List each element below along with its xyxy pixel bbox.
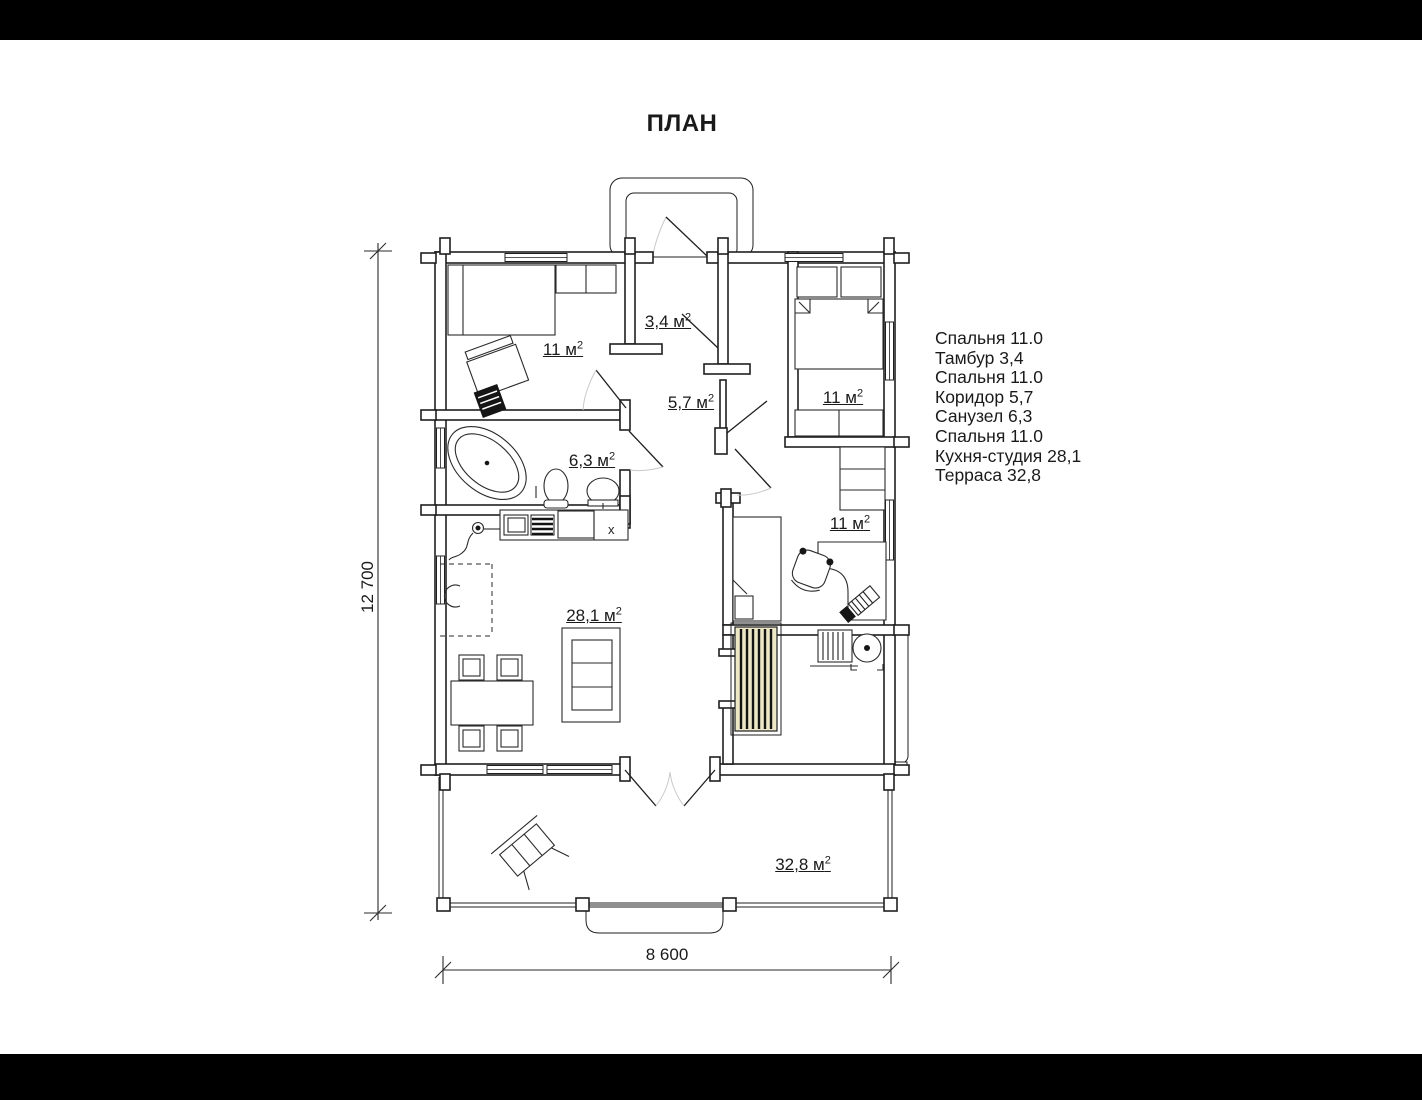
boiler <box>851 634 883 670</box>
page-title: ПЛАН <box>647 110 718 138</box>
room-label-bedroom-top-left: 11 м2 <box>543 340 583 360</box>
room-label-vestibule: 3,4 м2 <box>645 312 691 332</box>
legend-item: Терраса 32,8 <box>935 466 1081 486</box>
door-bedroom-top-left <box>596 370 626 408</box>
legend-item: Спальня 11.0 <box>935 427 1081 447</box>
pillow <box>841 267 881 297</box>
dimension-height-label: 12 700 <box>358 561 378 613</box>
legend-item: Спальня 11.0 <box>935 368 1081 388</box>
terrace-post <box>437 898 450 911</box>
legend: Спальня 11.0 Тамбур 3,4 Спальня 11.0 Кор… <box>935 329 1081 486</box>
door-bedroom-top-right <box>727 401 767 433</box>
kitchen-x-mark: x <box>608 522 615 537</box>
furniture-bedroom-top-left <box>448 265 616 417</box>
dimension-width-label: 8 600 <box>646 945 689 965</box>
door-bathroom <box>629 431 663 467</box>
toilet <box>544 469 568 503</box>
terrace-door-right-leaf <box>684 770 715 806</box>
bed <box>448 265 555 335</box>
screenshot-root: x <box>0 0 1422 1100</box>
terrace-door-left-leaf <box>625 770 656 806</box>
dashed-closet <box>440 564 492 636</box>
terrace-deck-chair <box>491 815 570 893</box>
terrace-post <box>884 898 897 911</box>
room-label-kitchen-studio: 28,1 м2 <box>566 606 622 626</box>
room-label-bathroom: 6,3 м2 <box>569 451 615 471</box>
terrace-post <box>576 898 589 911</box>
fridge <box>558 511 594 538</box>
legend-item: Тамбур 3,4 <box>935 349 1081 369</box>
room-label-corridor: 5,7 м2 <box>668 393 714 413</box>
room-label-bedroom-top-right: 11 м2 <box>823 388 863 408</box>
closet <box>840 447 885 510</box>
furniture-bedroom-middle-right <box>733 447 886 623</box>
legend-item: Санузел 6,3 <box>935 407 1081 427</box>
legend-item: Кухня-студия 28,1 <box>935 447 1081 467</box>
sofa <box>562 628 620 722</box>
staircase <box>731 623 781 735</box>
door-bedroom-middle-right <box>735 449 771 488</box>
terrace-steps <box>586 905 723 933</box>
furniture-bedroom-top-right <box>795 267 883 436</box>
dining-set <box>451 655 533 751</box>
pillow <box>797 267 837 297</box>
legend-item: Коридор 5,7 <box>935 388 1081 408</box>
legend-item: Спальня 11.0 <box>935 329 1081 349</box>
room-label-bedroom-middle-right: 11 м2 <box>830 514 870 534</box>
bathtub <box>434 412 540 514</box>
dining-table <box>451 681 533 725</box>
room-label-terrace: 32,8 м2 <box>775 855 831 875</box>
double-bed <box>795 299 883 369</box>
letterbox-top <box>0 0 1422 40</box>
letterbox-bottom <box>0 1054 1422 1100</box>
floor-plan-drawing: x <box>0 0 1422 1100</box>
terrace-post <box>723 898 736 911</box>
